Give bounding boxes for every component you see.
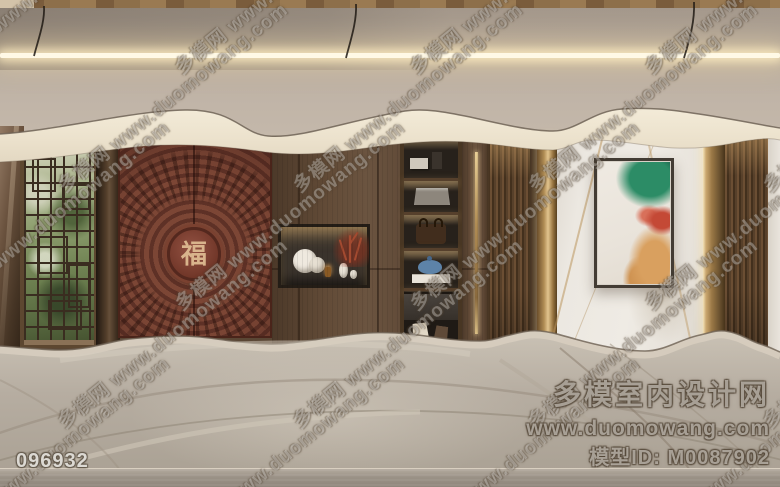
watermark-tile: 多模网 www.duomowang.com bbox=[522, 0, 763, 198]
watermark-model-id: 模型ID: M0087902 bbox=[526, 448, 770, 468]
watermark-tile: 多模网 www.duomowang.com bbox=[287, 0, 528, 198]
watermark-tile: 多模网 www.duomowang.com bbox=[404, 113, 645, 315]
watermark-tile: 多模网 www.duomowang.com bbox=[169, 113, 410, 315]
render-id: 096932 bbox=[16, 450, 89, 473]
watermark-tile: 多模网 www.duomowang.com bbox=[757, 0, 780, 198]
watermark-site-name: 多模室内设计网 bbox=[526, 381, 770, 409]
watermark-tile: 多模网 www.duomowang.com bbox=[52, 231, 293, 433]
watermark-tile: 多模网 www.duomowang.com bbox=[287, 231, 528, 433]
watermark-tile: 多模网 www.duomowang.com bbox=[169, 349, 410, 487]
watermark-tile: 多模网 www.duomowang.com bbox=[0, 113, 175, 315]
watermark-site-url: www.duomowang.com bbox=[526, 418, 770, 439]
panorama-render: 福 bbox=[0, 0, 780, 487]
watermark-tile: 多模网 www.duomowang.com bbox=[0, 0, 175, 80]
watermark-brand-block: 多模室内设计网 www.duomowang.com 模型ID: M0087902 bbox=[526, 381, 770, 468]
watermark-tile: 多模网 www.duomowang.com bbox=[52, 0, 293, 198]
